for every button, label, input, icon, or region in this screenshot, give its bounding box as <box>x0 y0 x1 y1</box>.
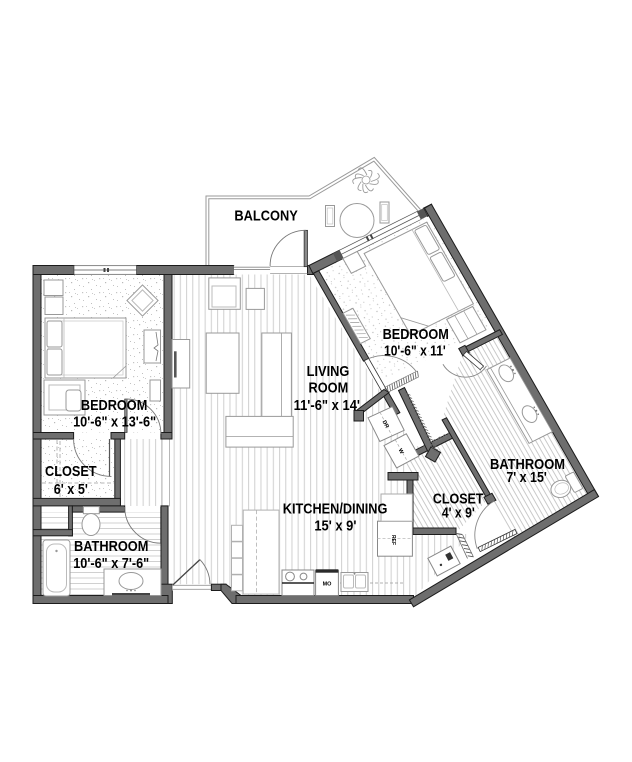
svg-text:4' x 9': 4' x 9' <box>442 505 475 522</box>
svg-text:BALCONY: BALCONY <box>234 207 297 224</box>
svg-text:15' x 9': 15' x 9' <box>314 518 356 535</box>
svg-text:10'-6" x 13'-6": 10'-6" x 13'-6" <box>73 414 156 431</box>
svg-text:BEDROOM: BEDROOM <box>81 397 147 414</box>
svg-text:ROOM: ROOM <box>309 380 349 397</box>
svg-text:11'-6" x 14': 11'-6" x 14' <box>294 397 360 414</box>
svg-text:LIVING: LIVING <box>307 363 350 380</box>
svg-text:7' x 15': 7' x 15' <box>506 469 547 486</box>
svg-text:BEDROOM: BEDROOM <box>383 326 449 343</box>
svg-text:CLOSET: CLOSET <box>45 463 97 480</box>
svg-text:6' x 5': 6' x 5' <box>54 481 88 498</box>
svg-text:REF: REF <box>390 535 396 545</box>
svg-text:10'-6" x 7'-6": 10'-6" x 7'-6" <box>73 555 149 572</box>
svg-text:KITCHEN/DINING: KITCHEN/DINING <box>283 500 388 517</box>
svg-text:BATHROOM: BATHROOM <box>74 538 148 555</box>
svg-text:10'-6" x 11': 10'-6" x 11' <box>384 343 446 360</box>
svg-text:MO: MO <box>323 582 333 588</box>
